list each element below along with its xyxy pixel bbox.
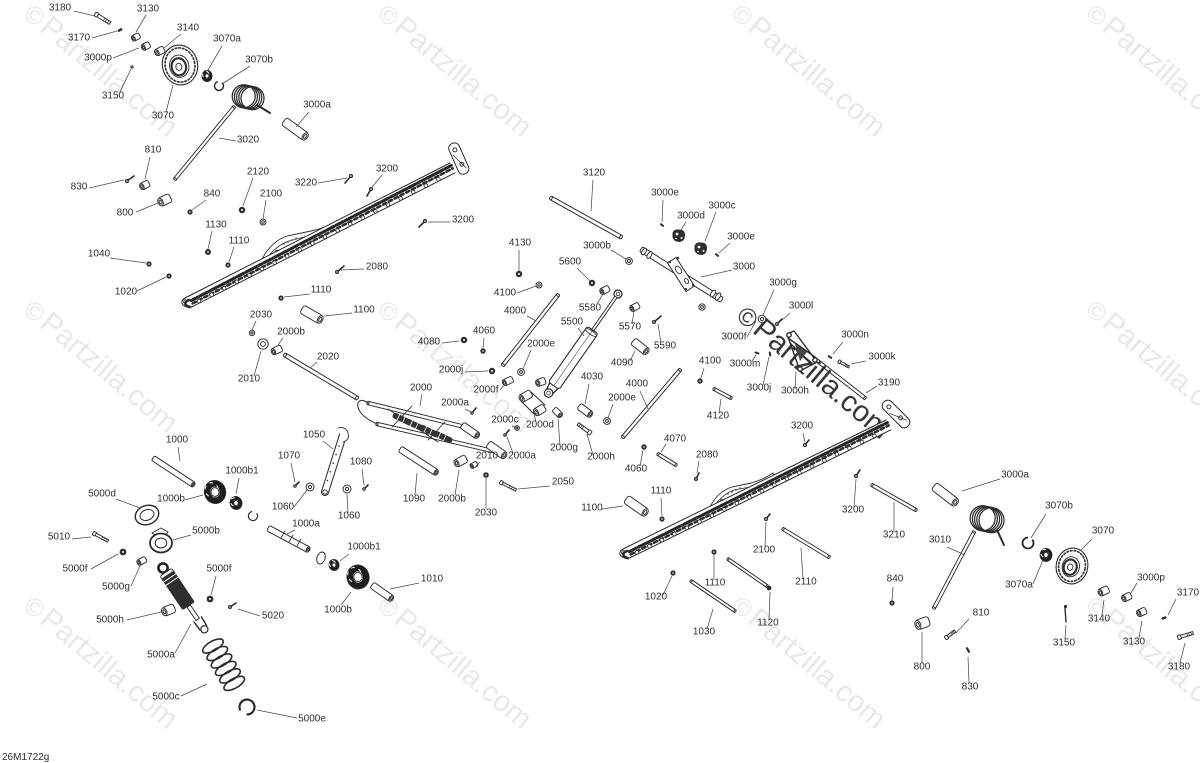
svg-text:5000h: 5000h bbox=[96, 615, 124, 626]
svg-text:5020: 5020 bbox=[262, 611, 285, 622]
svg-text:1050: 1050 bbox=[303, 430, 326, 441]
svg-text:3000b: 3000b bbox=[583, 241, 611, 252]
svg-text:1040: 1040 bbox=[88, 249, 111, 260]
svg-text:3170: 3170 bbox=[68, 33, 91, 44]
svg-text:3070b: 3070b bbox=[245, 55, 273, 66]
svg-text:1000b: 1000b bbox=[324, 605, 352, 616]
svg-text:830: 830 bbox=[71, 182, 88, 193]
svg-text:3000k: 3000k bbox=[868, 352, 896, 363]
svg-text:2120: 2120 bbox=[247, 167, 270, 178]
svg-text:800: 800 bbox=[914, 662, 931, 673]
svg-text:2000d: 2000d bbox=[526, 420, 554, 431]
svg-text:3000p: 3000p bbox=[84, 53, 112, 64]
svg-text:3130: 3130 bbox=[1123, 637, 1146, 648]
svg-text:3180: 3180 bbox=[49, 3, 72, 14]
svg-text:2000j: 2000j bbox=[439, 365, 463, 376]
svg-text:5590: 5590 bbox=[654, 341, 677, 352]
svg-text:2000e: 2000e bbox=[527, 339, 555, 350]
svg-text:2000b: 2000b bbox=[438, 494, 466, 505]
svg-text:2000g: 2000g bbox=[550, 443, 578, 454]
svg-text:5000f: 5000f bbox=[206, 564, 231, 575]
svg-text:3000p: 3000p bbox=[1137, 573, 1165, 584]
svg-text:1120: 1120 bbox=[757, 618, 779, 629]
svg-text:4120: 4120 bbox=[707, 411, 730, 422]
svg-text:3010: 3010 bbox=[929, 535, 952, 546]
svg-text:1060: 1060 bbox=[338, 511, 361, 522]
svg-text:3070a: 3070a bbox=[1005, 580, 1033, 591]
svg-text:5010: 5010 bbox=[48, 532, 71, 543]
svg-text:1090: 1090 bbox=[403, 494, 426, 505]
svg-text:1000b1: 1000b1 bbox=[225, 466, 259, 477]
svg-text:1000b1: 1000b1 bbox=[347, 542, 381, 553]
svg-text:2010: 2010 bbox=[476, 451, 499, 462]
svg-text:830: 830 bbox=[962, 682, 979, 693]
svg-text:5580: 5580 bbox=[579, 303, 602, 314]
svg-text:3000: 3000 bbox=[733, 262, 756, 273]
svg-text:5000b: 5000b bbox=[192, 526, 220, 537]
svg-text:5000g: 5000g bbox=[102, 582, 130, 593]
svg-text:1020: 1020 bbox=[115, 287, 138, 298]
svg-text:1110: 1110 bbox=[311, 285, 332, 296]
svg-text:3210: 3210 bbox=[883, 530, 906, 541]
svg-text:1110: 1110 bbox=[229, 236, 250, 247]
svg-text:5570: 5570 bbox=[619, 322, 642, 333]
svg-text:3070: 3070 bbox=[152, 111, 175, 122]
svg-text:2000a: 2000a bbox=[441, 398, 469, 409]
svg-text:2000f: 2000f bbox=[473, 385, 498, 396]
svg-text:1030: 1030 bbox=[693, 627, 716, 638]
svg-text:5000c: 5000c bbox=[152, 692, 179, 703]
svg-text:4090: 4090 bbox=[611, 358, 634, 369]
svg-text:1110: 1110 bbox=[651, 486, 672, 497]
svg-text:3200: 3200 bbox=[791, 421, 814, 432]
svg-text:5000f: 5000f bbox=[62, 564, 87, 575]
svg-text:3190: 3190 bbox=[878, 378, 901, 389]
svg-text:5500: 5500 bbox=[561, 317, 584, 328]
svg-text:4060: 4060 bbox=[473, 326, 496, 337]
svg-text:2000: 2000 bbox=[410, 383, 433, 394]
svg-text:3140: 3140 bbox=[1088, 614, 1111, 625]
svg-text:800: 800 bbox=[117, 208, 134, 219]
svg-text:2000e: 2000e bbox=[608, 393, 636, 404]
svg-text:4070: 4070 bbox=[664, 434, 687, 445]
svg-text:3170: 3170 bbox=[1177, 588, 1200, 599]
svg-text:3070b: 3070b bbox=[1045, 501, 1073, 512]
svg-text:2030: 2030 bbox=[475, 508, 498, 519]
svg-text:3000l: 3000l bbox=[789, 301, 813, 312]
svg-text:3140: 3140 bbox=[177, 23, 200, 34]
svg-text:3000m: 3000m bbox=[730, 359, 761, 370]
svg-text:3150: 3150 bbox=[1053, 638, 1076, 649]
svg-text:1000a: 1000a bbox=[292, 519, 320, 530]
svg-text:1000: 1000 bbox=[166, 435, 189, 446]
svg-text:3020: 3020 bbox=[237, 135, 260, 146]
svg-text:1110: 1110 bbox=[705, 578, 726, 589]
svg-text:1010: 1010 bbox=[421, 574, 444, 585]
svg-text:4100: 4100 bbox=[494, 288, 517, 299]
svg-text:26M1722g: 26M1722g bbox=[2, 752, 49, 763]
svg-text:3000c: 3000c bbox=[708, 201, 735, 212]
svg-text:1100: 1100 bbox=[581, 503, 603, 514]
svg-text:840: 840 bbox=[204, 189, 221, 200]
svg-text:3000a: 3000a bbox=[1001, 470, 1029, 481]
svg-text:3000f: 3000f bbox=[721, 332, 746, 343]
svg-text:2000b: 2000b bbox=[277, 327, 305, 338]
svg-text:4000: 4000 bbox=[504, 306, 527, 317]
svg-text:2030: 2030 bbox=[250, 310, 273, 321]
svg-text:2010: 2010 bbox=[238, 374, 261, 385]
svg-text:4060: 4060 bbox=[625, 464, 648, 475]
svg-text:2000a: 2000a bbox=[508, 451, 536, 462]
svg-text:3000g: 3000g bbox=[769, 278, 797, 289]
svg-text:1100: 1100 bbox=[353, 305, 375, 316]
svg-text:1070: 1070 bbox=[278, 451, 301, 462]
svg-text:3220: 3220 bbox=[295, 178, 318, 189]
svg-text:3200: 3200 bbox=[452, 215, 475, 226]
svg-text:3200: 3200 bbox=[842, 505, 865, 516]
svg-text:3000h: 3000h bbox=[781, 386, 809, 397]
svg-text:810: 810 bbox=[145, 145, 162, 156]
svg-text:2100: 2100 bbox=[260, 189, 283, 200]
svg-text:1060: 1060 bbox=[272, 502, 295, 513]
svg-text:2080: 2080 bbox=[366, 262, 389, 273]
svg-text:5000d: 5000d bbox=[88, 489, 116, 500]
svg-text:1020: 1020 bbox=[645, 592, 668, 603]
svg-text:3070a: 3070a bbox=[213, 34, 241, 45]
svg-text:4130: 4130 bbox=[509, 238, 532, 249]
svg-text:1000b: 1000b bbox=[157, 494, 185, 505]
svg-text:2110: 2110 bbox=[795, 577, 817, 588]
svg-text:3150: 3150 bbox=[102, 91, 125, 102]
svg-text:3000e: 3000e bbox=[651, 188, 679, 199]
svg-text:2080: 2080 bbox=[696, 450, 719, 461]
svg-text:3000n: 3000n bbox=[841, 330, 869, 341]
svg-text:4030: 4030 bbox=[581, 372, 604, 383]
svg-text:4080: 4080 bbox=[418, 337, 441, 348]
svg-text:2050: 2050 bbox=[552, 477, 575, 488]
svg-text:2020: 2020 bbox=[317, 352, 340, 363]
svg-text:2000h: 2000h bbox=[587, 452, 615, 463]
svg-text:840: 840 bbox=[887, 574, 904, 585]
svg-text:5000a: 5000a bbox=[147, 650, 175, 661]
svg-text:3000j: 3000j bbox=[747, 383, 771, 394]
svg-text:4100: 4100 bbox=[699, 356, 722, 367]
svg-text:810: 810 bbox=[973, 608, 990, 619]
svg-text:1130: 1130 bbox=[205, 220, 227, 231]
svg-text:3130: 3130 bbox=[137, 4, 160, 15]
svg-text:1080: 1080 bbox=[350, 457, 373, 468]
svg-text:5000e: 5000e bbox=[298, 714, 326, 725]
svg-text:2000c: 2000c bbox=[491, 415, 518, 426]
svg-text:2100: 2100 bbox=[753, 545, 776, 556]
svg-text:3200: 3200 bbox=[376, 164, 399, 175]
svg-text:3180: 3180 bbox=[1168, 662, 1191, 673]
svg-text:3000a: 3000a bbox=[303, 100, 331, 111]
svg-text:3000d: 3000d bbox=[677, 211, 705, 222]
svg-text:3000e: 3000e bbox=[727, 232, 755, 243]
svg-text:4000: 4000 bbox=[626, 379, 649, 390]
svg-text:5600: 5600 bbox=[559, 257, 582, 268]
svg-text:3070: 3070 bbox=[1092, 526, 1115, 537]
svg-text:3120: 3120 bbox=[583, 168, 606, 179]
